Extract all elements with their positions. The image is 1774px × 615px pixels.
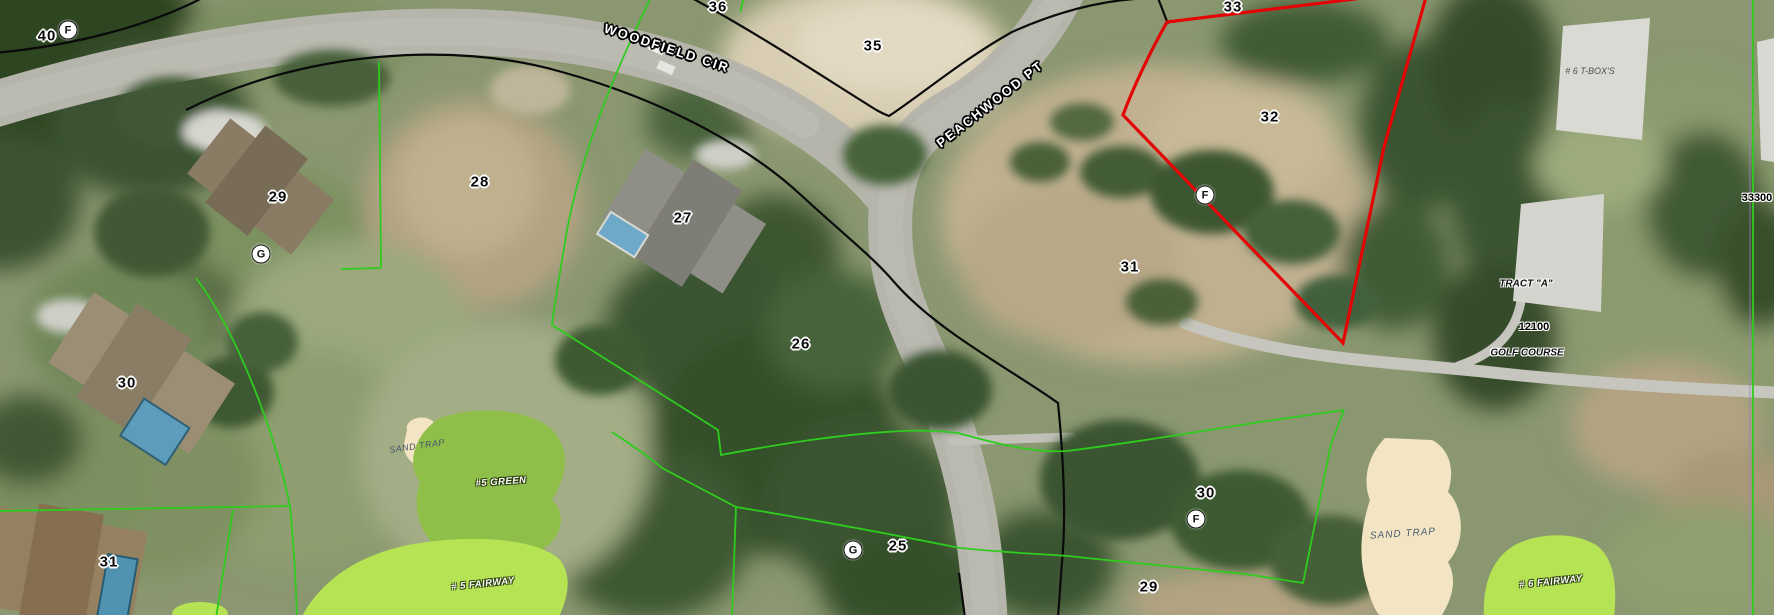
tee-box-label: # 6 T-BOX'S	[1565, 66, 1614, 76]
lot-number-label: 25	[889, 538, 908, 555]
lot-number-label: 30	[118, 375, 137, 392]
lot-number-label: 31	[1121, 259, 1140, 276]
golf-course-label: GOLF COURSE	[1490, 348, 1563, 359]
fairway-5-label: # 5 FAIRWAY	[451, 575, 516, 593]
road-ref-12100: 12100	[1519, 321, 1550, 333]
marker-F[interactable]: F	[1196, 186, 1215, 205]
marker-G[interactable]: G	[252, 245, 271, 264]
marker-G[interactable]: G	[844, 541, 863, 560]
marker-F[interactable]: F	[59, 21, 78, 40]
green-5-label: #5 GREEN	[475, 475, 527, 490]
street-label-peachwood-pt: PEACHWOOD PT	[934, 58, 1047, 151]
fairway-6-label: # 6 FAIRWAY	[1519, 573, 1584, 591]
tract-a-label: TRACT "A"	[1499, 279, 1552, 290]
lot-number-label: 27	[674, 210, 693, 227]
lot-number-label: 28	[471, 174, 490, 191]
lot-number-label: 35	[864, 38, 883, 55]
lot-number-label: 40	[38, 28, 57, 45]
street-label-woodfield-cir: WOODFIELD CIR	[602, 21, 732, 76]
lot-number-label: 32	[1261, 109, 1280, 126]
lot-number-label: 33	[1224, 0, 1243, 16]
marker-F[interactable]: F	[1187, 510, 1206, 529]
lot-number-label: 30	[1197, 485, 1216, 502]
lot-number-label: 26	[792, 336, 811, 353]
sand-trap-label: SAND TRAP	[1370, 526, 1437, 542]
lot-number-label: 29	[269, 189, 288, 206]
lot-number-label: 29	[1140, 579, 1159, 596]
label-layer: 403635333231292827262530313029WOODFIELD …	[0, 0, 1774, 615]
sand-trap-label: SAND TRAP	[389, 437, 446, 455]
lot-number-label: 31	[100, 554, 119, 571]
lot-number-label: 36	[709, 0, 728, 16]
aerial-parcel-map[interactable]: 403635333231292827262530313029WOODFIELD …	[0, 0, 1774, 615]
road-ref-33300: 33300	[1742, 192, 1773, 204]
